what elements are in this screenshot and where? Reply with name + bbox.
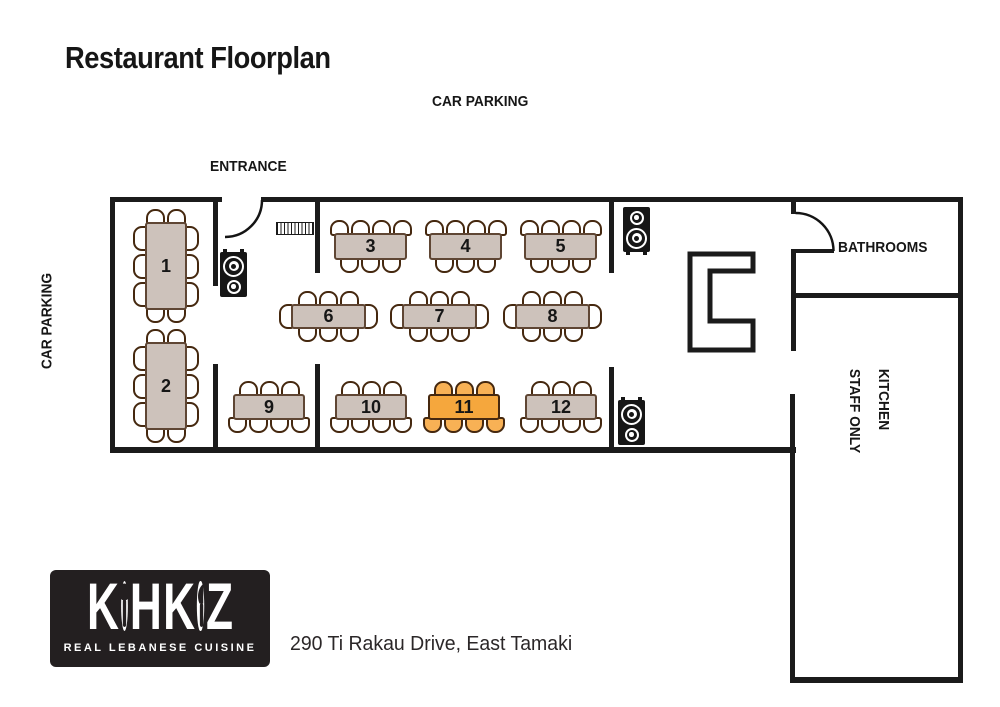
wall-bathroom-jamb-bottom [791, 250, 796, 351]
kitchen-label-line2: STAFF ONLY [840, 369, 869, 453]
kitchen-label-line1: KITCHEN [869, 369, 898, 453]
logo-o-knife-icon [197, 581, 204, 631]
table-3[interactable]: 3 [334, 233, 407, 260]
logo-o-spoon-icon [121, 581, 128, 631]
car-parking-left-label: CAR PARKING [39, 273, 56, 369]
table-9[interactable]: 9 [233, 394, 305, 420]
table-12[interactable]: 12 [525, 394, 597, 420]
kitchen-staff-only-label: KITCHEN STAFF ONLY [840, 369, 898, 453]
wall-divider-top-left [315, 197, 320, 273]
table-4[interactable]: 4 [429, 233, 502, 260]
bathroom-door-leaf [791, 249, 834, 253]
table-6[interactable]: 6 [291, 304, 366, 329]
bar-label: BAR [692, 282, 708, 310]
wall-top-left [110, 197, 222, 202]
table-8[interactable]: 8 [515, 304, 590, 329]
wall-right [958, 197, 963, 683]
table-5[interactable]: 5 [524, 233, 597, 260]
logo: KHKZ REAL LEBANESE CUISINE [50, 570, 270, 667]
bathrooms-label: BATHROOMS [838, 239, 927, 256]
entrance-door-arc [225, 200, 262, 237]
wall-left [110, 197, 115, 453]
floorplan-canvas: Restaurant Floorplan CAR PARKING ENTRANC… [0, 0, 1000, 707]
wall-bathroom-jamb-top [791, 197, 796, 214]
wall-divider-top-right [609, 197, 614, 273]
logo-tagline: REAL LEBANESE CUISINE [50, 642, 270, 654]
wall-divider-table1-room [213, 197, 218, 286]
table-2[interactable]: 2 [145, 342, 187, 430]
car-parking-top-label: CAR PARKING [432, 93, 528, 110]
wall-stub-bottom-c [609, 367, 614, 453]
wall-stub-bottom-b [315, 364, 320, 453]
page-title: Restaurant Floorplan [65, 40, 331, 76]
wall-stub-bottom-a [213, 364, 218, 453]
address-text: 290 Ti Rakau Drive, East Tamaki [290, 632, 572, 656]
table-1[interactable]: 1 [145, 222, 187, 310]
logo-letter: Z [206, 573, 233, 639]
table-10[interactable]: 10 [335, 394, 407, 420]
table-11[interactable]: 11 [428, 394, 500, 420]
logo-wordmark: KHKZ [86, 577, 233, 635]
speaker-icon [623, 207, 650, 252]
logo-letter: K [87, 573, 119, 639]
piano-keyboard-icon [276, 222, 314, 235]
bathroom-door-arc [796, 213, 834, 251]
speaker-icon [618, 400, 645, 445]
wall-kitchen-bottom [790, 677, 963, 683]
entrance-label: ENTRANCE [210, 158, 287, 175]
speaker-icon [220, 252, 247, 297]
table-7[interactable]: 7 [402, 304, 477, 329]
wall-bathroom-bottom [791, 293, 963, 298]
logo-letter: K [163, 573, 195, 639]
logo-letter: H [130, 573, 162, 639]
wall-kitchen-left [790, 394, 795, 683]
